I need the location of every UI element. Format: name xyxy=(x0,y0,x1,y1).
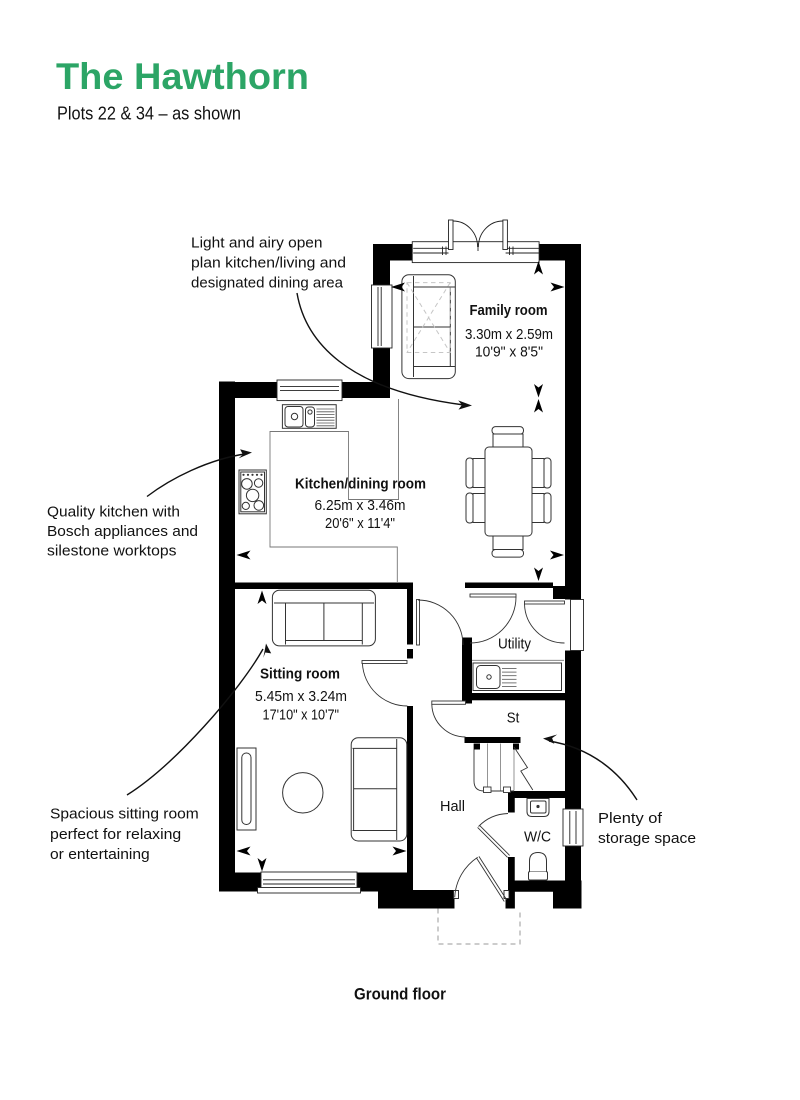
svg-text:Spacious sitting room: Spacious sitting room xyxy=(50,807,199,823)
svg-text:Light and airy open: Light and airy open xyxy=(191,236,323,252)
svg-text:Plenty of: Plenty of xyxy=(598,811,663,827)
svg-text:10'9" x 8'5": 10'9" x 8'5" xyxy=(475,345,543,361)
svg-text:Hall: Hall xyxy=(440,799,465,815)
svg-text:Utility: Utility xyxy=(498,637,532,653)
svg-text:3.30m x 2.59m: 3.30m x 2.59m xyxy=(465,327,553,343)
svg-text:Bosch appliances and: Bosch appliances and xyxy=(47,524,198,540)
svg-text:20'6" x 11'4": 20'6" x 11'4" xyxy=(325,516,395,532)
svg-text:6.25m x 3.46m: 6.25m x 3.46m xyxy=(315,498,406,514)
svg-text:St: St xyxy=(507,711,520,727)
svg-text:silestone worktops: silestone worktops xyxy=(47,544,177,560)
svg-text:Quality kitchen with: Quality kitchen with xyxy=(47,505,180,521)
svg-text:Kitchen/dining room: Kitchen/dining room xyxy=(295,477,426,493)
svg-text:Family room: Family room xyxy=(470,303,548,319)
svg-text:or entertaining: or entertaining xyxy=(50,847,150,863)
svg-text:Ground floor: Ground floor xyxy=(354,986,447,1004)
svg-text:Sitting room: Sitting room xyxy=(260,667,340,683)
svg-text:Plots 22 & 34 – as shown: Plots 22 & 34 – as shown xyxy=(57,104,241,124)
svg-text:17'10" x 10'7": 17'10" x 10'7" xyxy=(263,708,340,724)
svg-text:storage space: storage space xyxy=(598,831,696,847)
svg-text:perfect for relaxing: perfect for relaxing xyxy=(50,827,181,843)
svg-text:designated dining area: designated dining area xyxy=(191,276,343,292)
svg-text:The Hawthorn: The Hawthorn xyxy=(56,56,309,97)
svg-text:W/C: W/C xyxy=(524,830,551,846)
svg-text:5.45m x 3.24m: 5.45m x 3.24m xyxy=(255,689,347,705)
svg-text:plan kitchen/living and: plan kitchen/living and xyxy=(191,256,346,272)
